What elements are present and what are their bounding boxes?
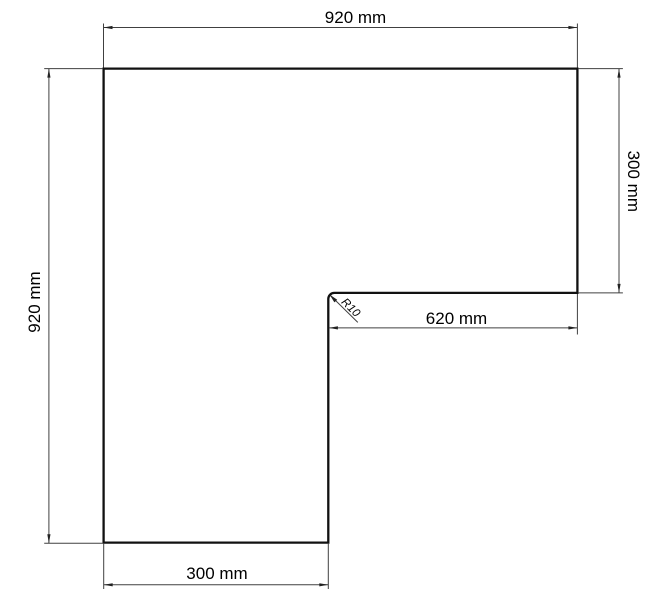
svg-text:300 mm: 300 mm xyxy=(186,564,247,583)
svg-text:300 mm: 300 mm xyxy=(624,151,643,212)
svg-text:R10: R10 xyxy=(339,296,363,320)
svg-text:920 mm: 920 mm xyxy=(325,8,386,27)
svg-text:620 mm: 620 mm xyxy=(426,309,487,328)
svg-text:920 mm: 920 mm xyxy=(25,271,44,332)
